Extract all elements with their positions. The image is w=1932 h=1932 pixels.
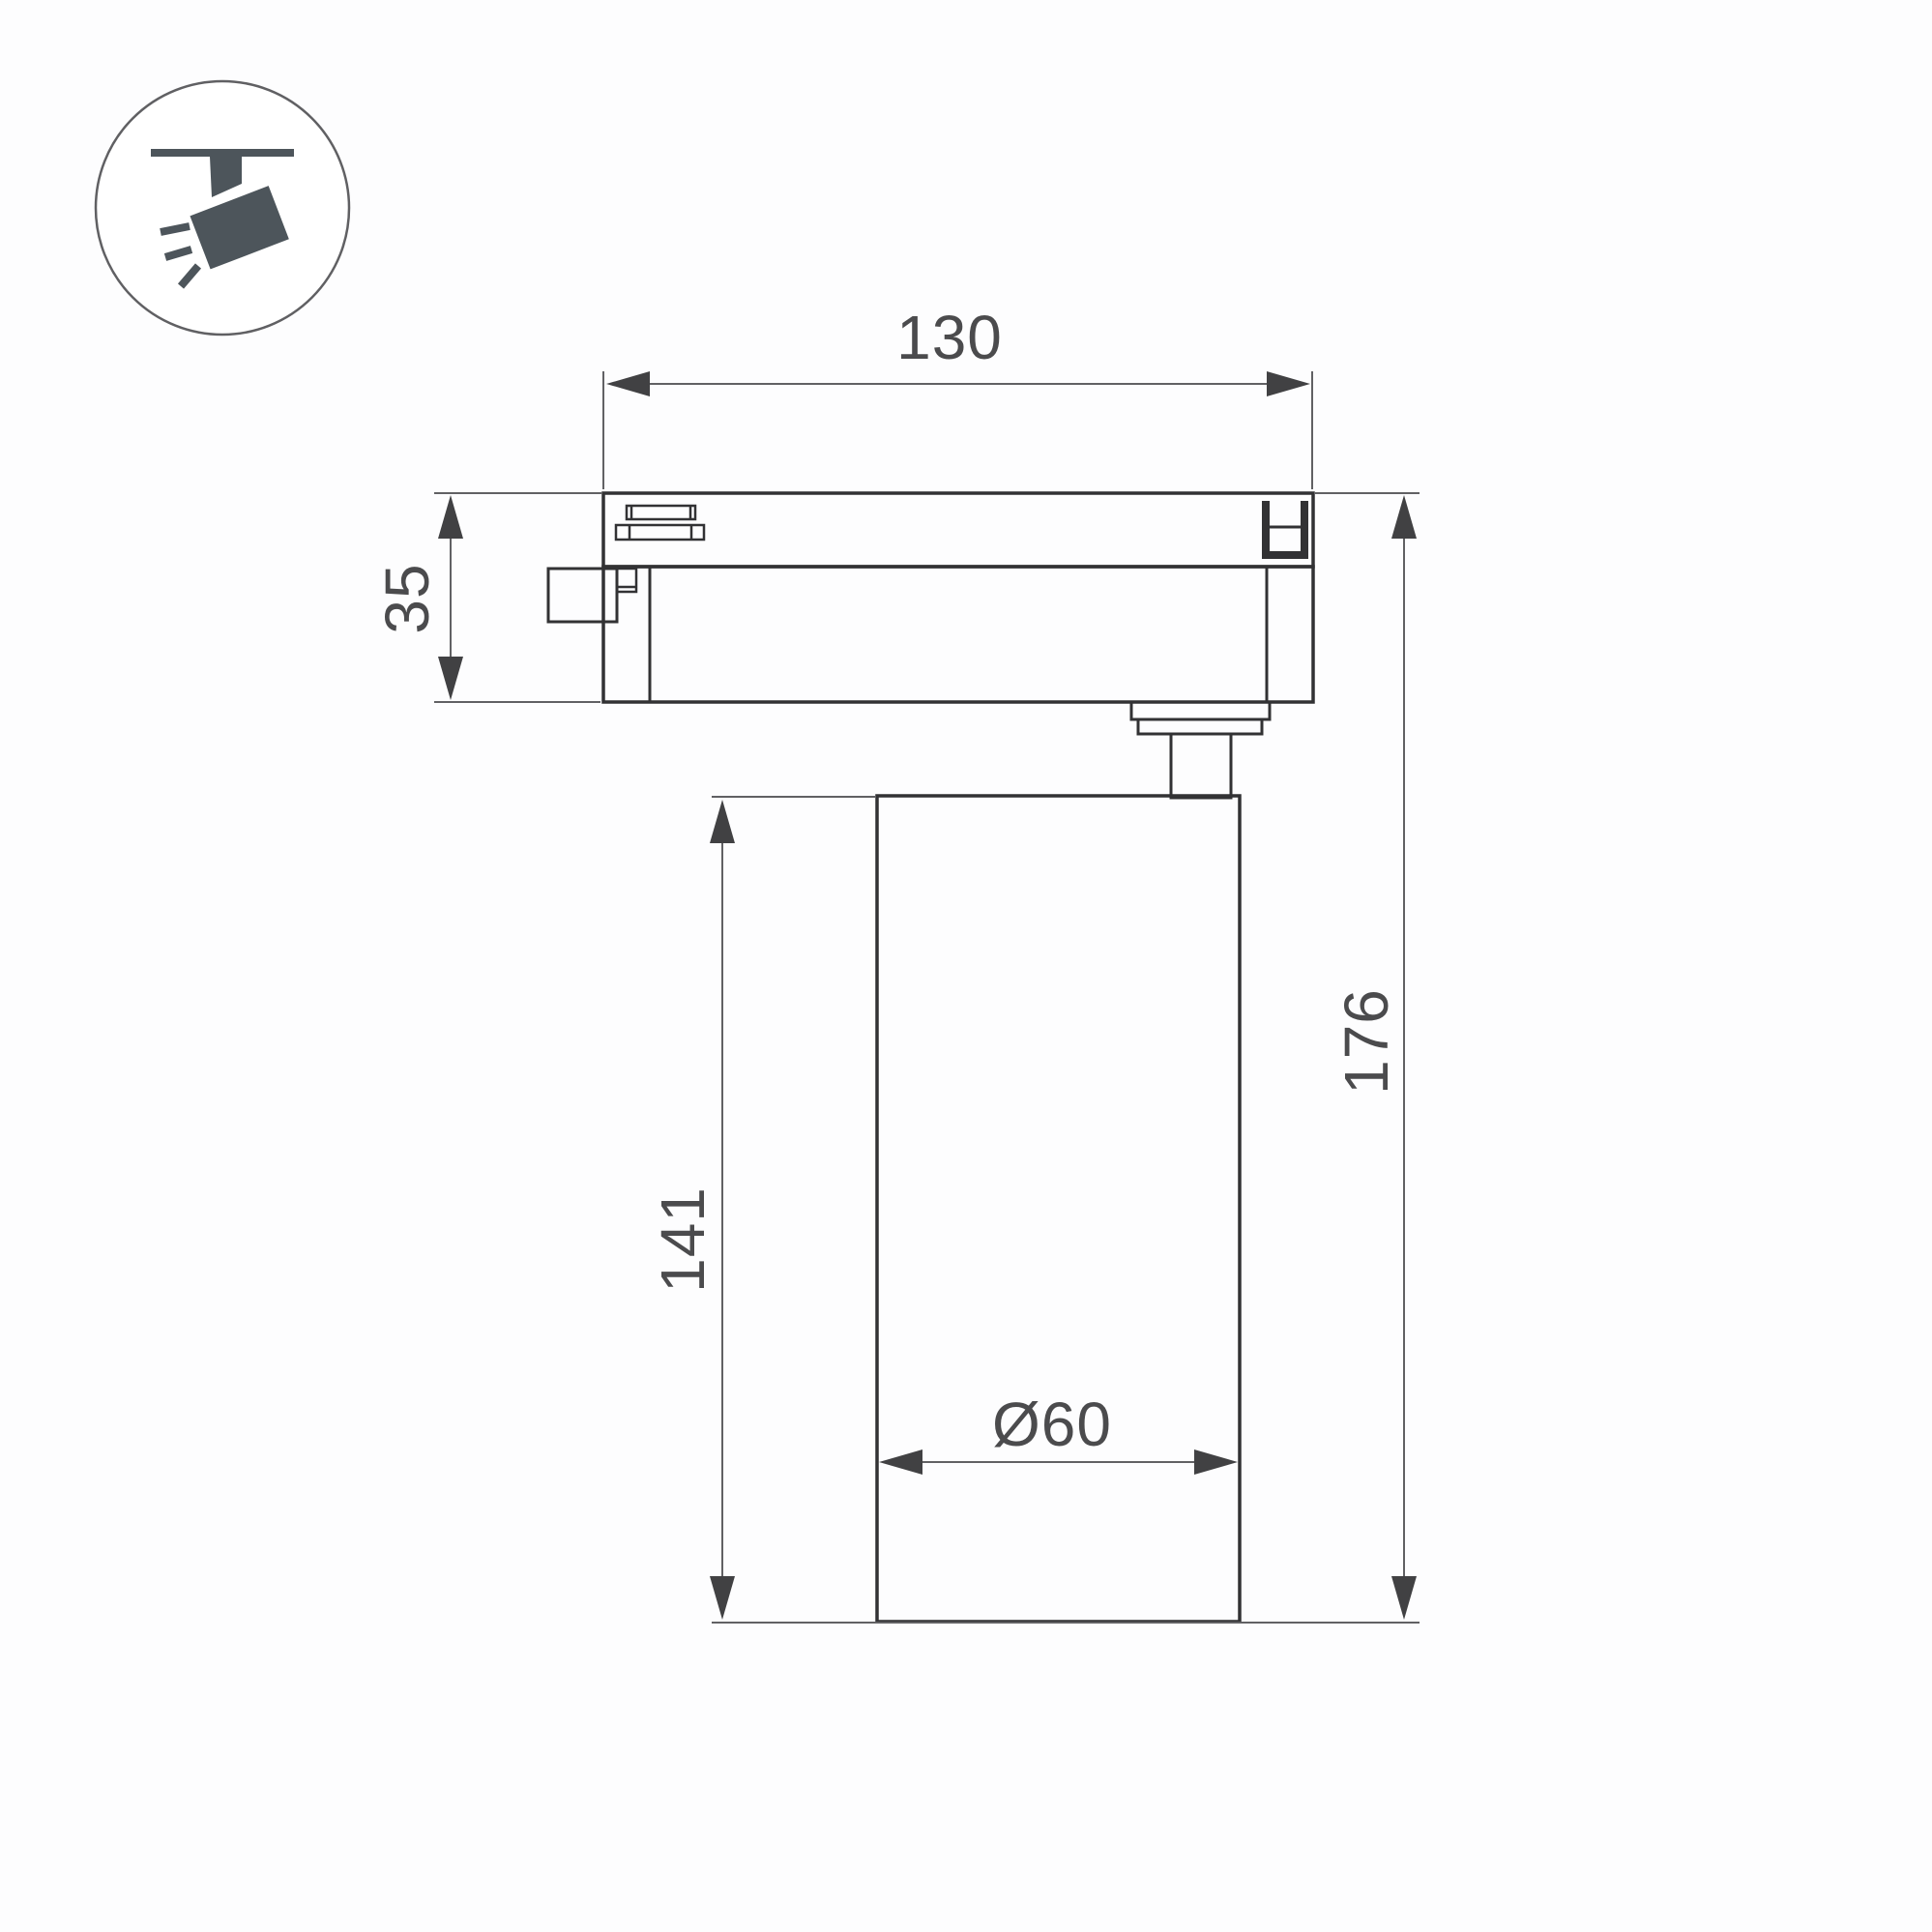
dimension-body-height	[710, 797, 875, 1620]
swivel-plate-lower	[1138, 719, 1262, 734]
dimension-labels: 130 35 141 176 Ø60	[372, 303, 1401, 1459]
dimension-track-width	[603, 371, 1312, 489]
icon-track-bar	[151, 149, 294, 157]
arrowhead-up	[710, 800, 735, 843]
arrowhead-left	[879, 1449, 922, 1475]
arrowhead-up	[438, 495, 463, 539]
swivel-plate-upper	[1131, 702, 1270, 719]
label-total-height: 176	[1332, 988, 1401, 1095]
dimensions	[434, 371, 1420, 1623]
arrowhead-right	[1194, 1449, 1238, 1475]
arrowhead-right	[1267, 371, 1310, 396]
arrowhead-down	[438, 657, 463, 700]
adapter-top-plate	[603, 493, 1313, 567]
drawing-canvas: 130 35 141 176 Ø60	[0, 0, 1932, 1932]
adapter-right-clip	[1262, 501, 1308, 559]
arrowhead-left	[606, 371, 650, 396]
swivel-stem	[1171, 734, 1231, 798]
label-adapter-height: 35	[372, 563, 442, 633]
track-light-dimension-drawing: 130 35 141 176 Ø60	[0, 0, 1932, 1932]
adapter-selector-knob	[548, 569, 617, 622]
arrowhead-down	[710, 1576, 735, 1620]
label-track-width: 130	[896, 303, 1003, 372]
dimension-adapter-height	[434, 493, 601, 702]
adapter-left-clips	[616, 506, 704, 540]
lamp-body	[877, 796, 1240, 1622]
track-spotlight-icon	[96, 81, 349, 335]
arrowhead-down	[1391, 1576, 1417, 1620]
arrowhead-up	[1391, 495, 1417, 539]
adapter-lower-housing	[603, 567, 1313, 702]
clip-upper	[627, 506, 695, 519]
label-body-height: 141	[648, 1186, 717, 1293]
adapter-latch-detail	[617, 569, 636, 592]
label-body-diameter: Ø60	[992, 1390, 1112, 1459]
